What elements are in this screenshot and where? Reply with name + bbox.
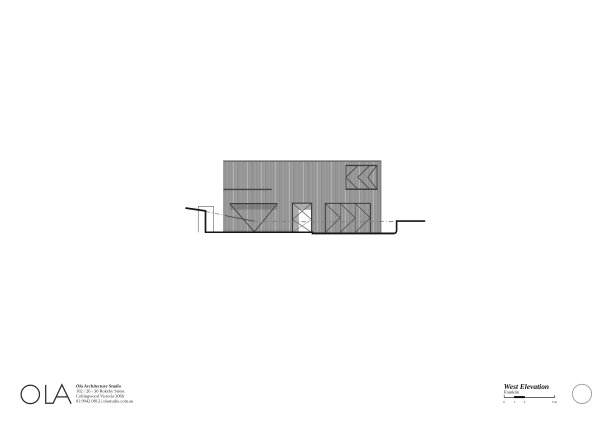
svg-text:0: 0 bbox=[503, 400, 505, 404]
svg-text:03 9942 0812 | olastudio.com.a: 03 9942 0812 | olastudio.com.au bbox=[76, 399, 134, 404]
svg-text:Franklin: Franklin bbox=[504, 390, 520, 395]
svg-text:1: 1 bbox=[513, 400, 515, 404]
svg-text:5 m: 5 m bbox=[552, 400, 558, 404]
svg-text:2: 2 bbox=[524, 400, 526, 404]
